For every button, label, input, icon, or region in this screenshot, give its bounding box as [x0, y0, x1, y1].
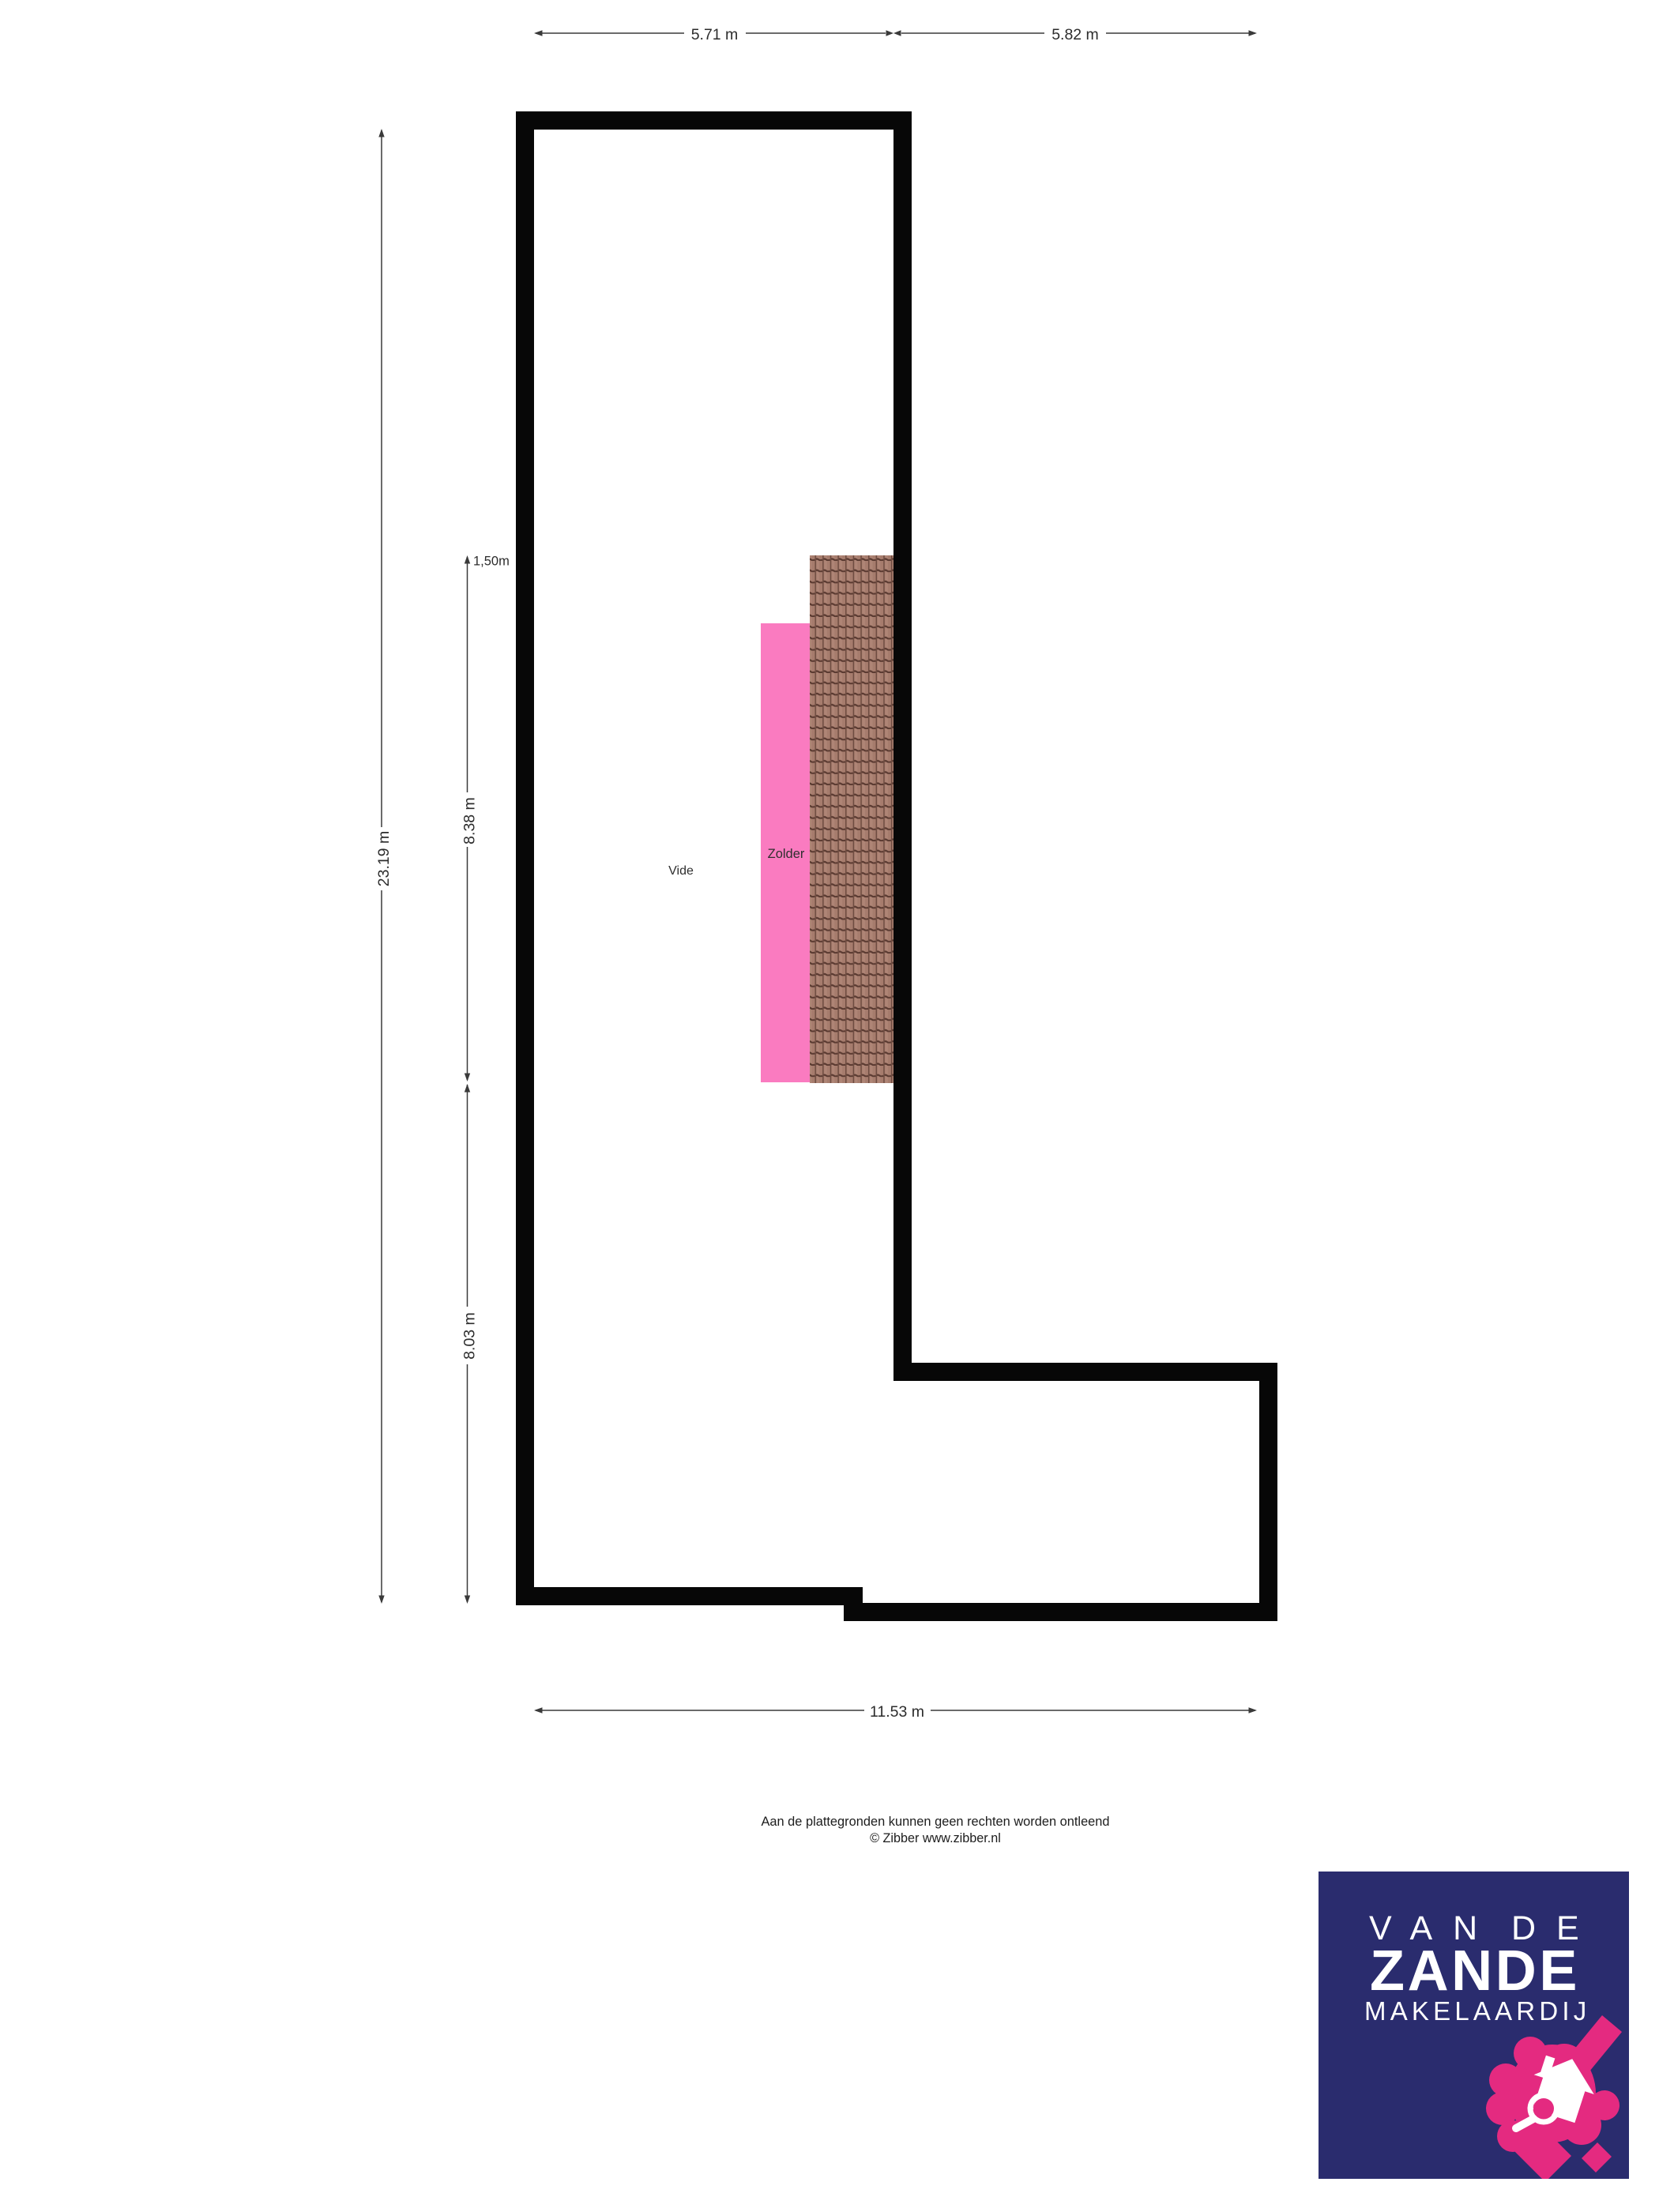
- svg-text:5.71 m: 5.71 m: [691, 26, 739, 43]
- svg-text:© Zibber www.zibber.nl: © Zibber www.zibber.nl: [870, 1831, 1001, 1845]
- svg-text:8.38 m: 8.38 m: [461, 797, 479, 845]
- svg-text:MAKELAARDIJ: MAKELAARDIJ: [1364, 1996, 1590, 2026]
- svg-text:Vide: Vide: [668, 864, 694, 878]
- svg-text:Zolder: Zolder: [768, 847, 805, 861]
- svg-text:23.19 m: 23.19 m: [375, 831, 393, 886]
- svg-text:5.82 m: 5.82 m: [1051, 26, 1099, 43]
- svg-text:ZANDE: ZANDE: [1370, 1939, 1580, 2003]
- svg-text:Aan de plattegronden kunnen ge: Aan de plattegronden kunnen geen rechten…: [761, 1815, 1109, 1829]
- svg-text:11.53 m: 11.53 m: [870, 1703, 924, 1721]
- svg-text:8.03 m: 8.03 m: [461, 1312, 479, 1360]
- svg-text:1,50m: 1,50m: [473, 555, 510, 569]
